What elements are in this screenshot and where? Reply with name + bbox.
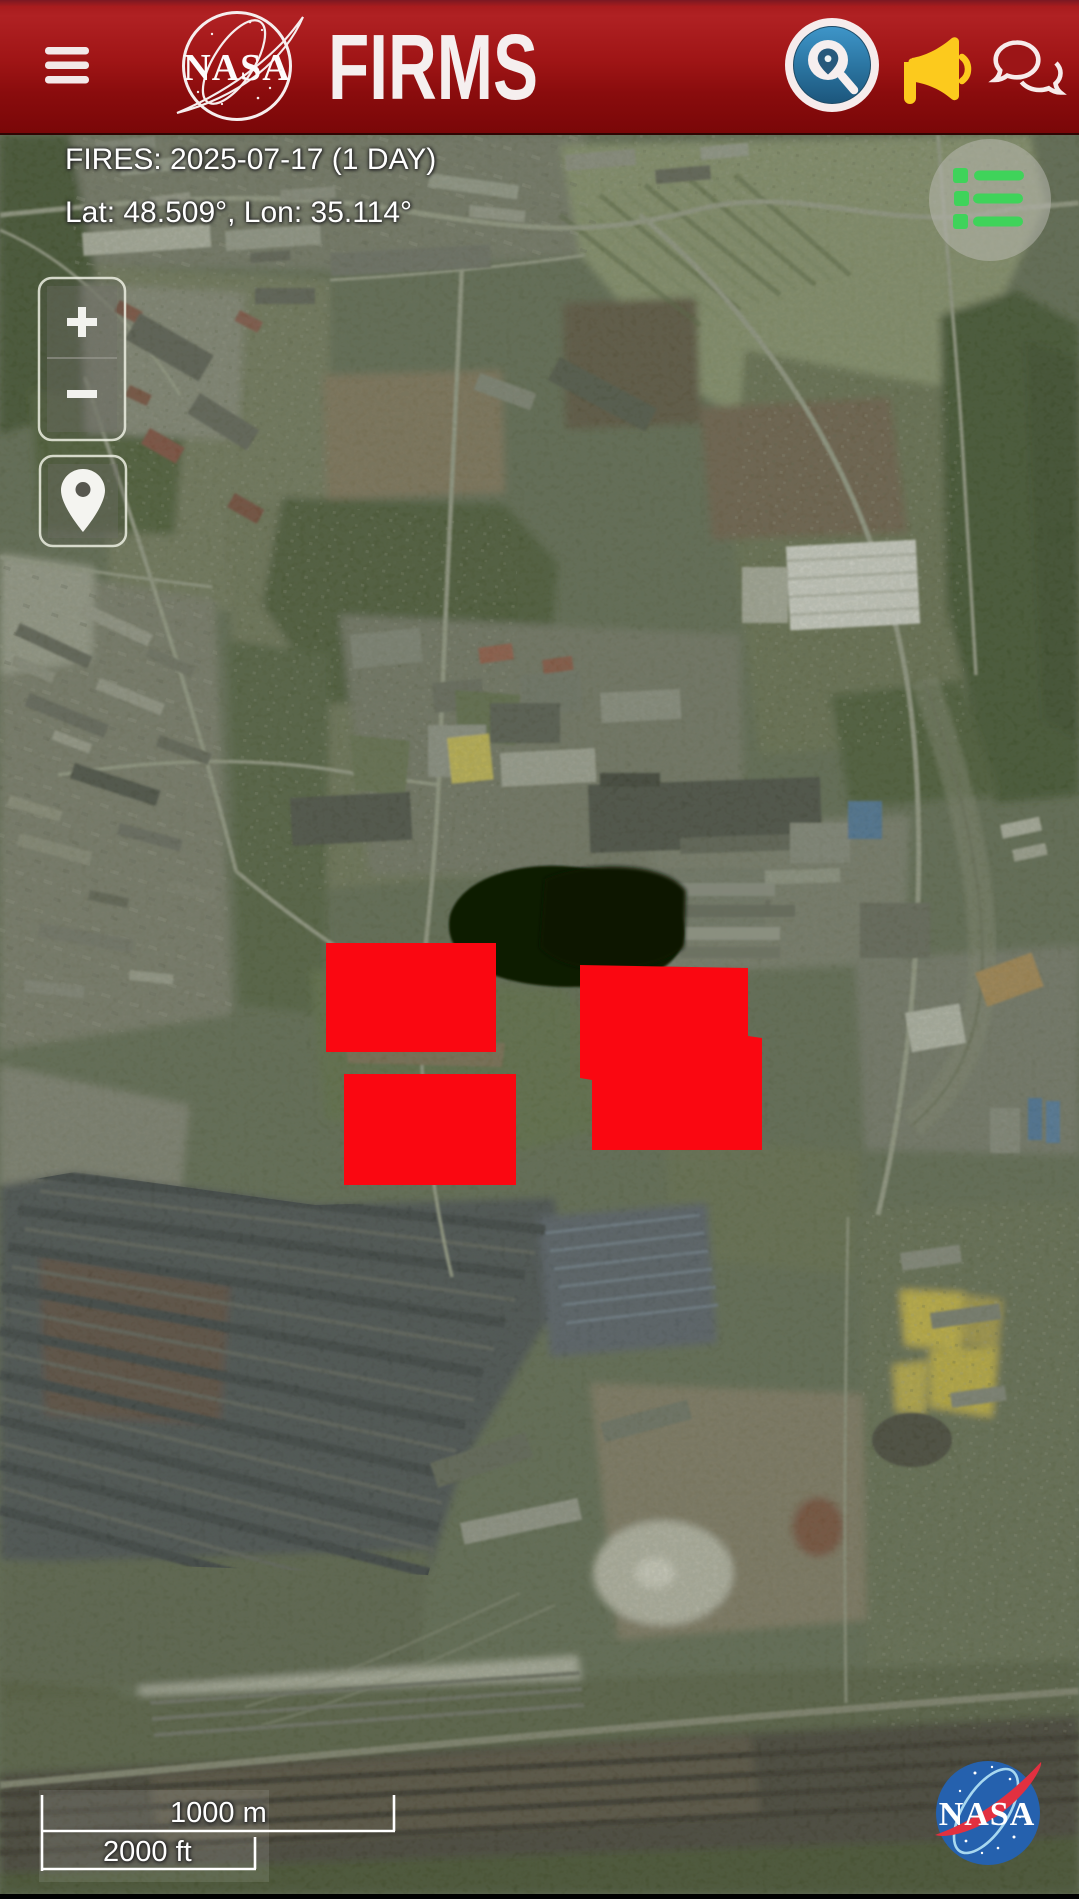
svg-text:NASA: NASA — [183, 47, 290, 89]
svg-text:NASA: NASA — [939, 1796, 1036, 1833]
svg-text:FIRMS: FIRMS — [328, 15, 538, 119]
